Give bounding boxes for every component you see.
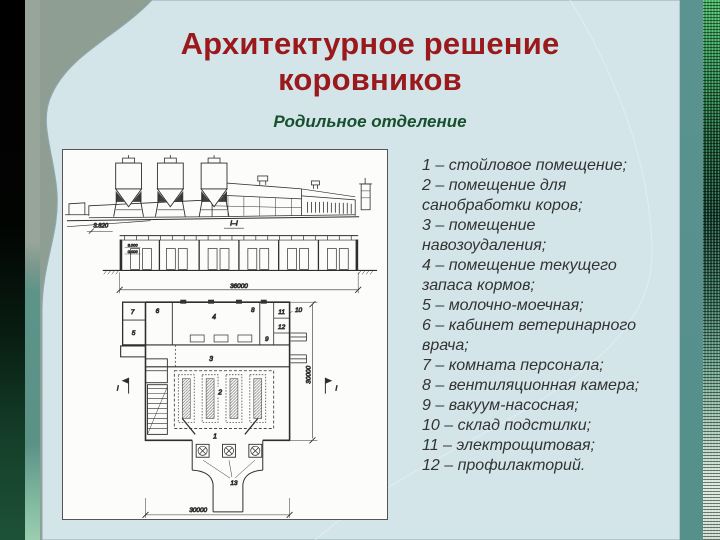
section-level-upper: 3.000 [128, 243, 139, 248]
room-label-6: 6 [156, 308, 160, 315]
section-marker-flag [122, 378, 333, 394]
room-label-12: 12 [278, 324, 286, 331]
legend-item: 4 – помещение текущего запаса кормов; [422, 256, 640, 296]
legend-item: 7 – комната персонала; [422, 356, 640, 376]
room-label-13: 13 [230, 480, 238, 487]
legend-item: 1 – стойловое помещение; [422, 156, 640, 176]
elevation-drawing [65, 155, 372, 227]
legend-item: 3 – помещение навозоудаления; [422, 216, 640, 256]
room-number-labels: 7 6 5 4 8 9 11 12 10 3 2 1 13 [131, 307, 303, 487]
drawing-panel: I–I 3.820 [62, 149, 388, 520]
right-texture-strip [703, 0, 720, 540]
slide-subtitle: Родильное отделение [90, 112, 650, 132]
room-label-10: 10 [295, 307, 303, 314]
cowshed-drawing: I–I 3.820 [63, 150, 387, 519]
room-label-2: 2 [217, 390, 222, 397]
slide-title: Архитектурное решение коровников [90, 26, 650, 98]
plan-height-dim: 30000 [305, 365, 312, 383]
legend-list: 1 – стойловое помещение; 2 – помещение д… [422, 156, 640, 476]
room-label-11: 11 [278, 309, 285, 316]
left-accent-strip [25, 0, 40, 540]
room-label-8: 8 [251, 307, 255, 314]
silo-group [114, 155, 229, 217]
legend-item: 2 – помещение для санобработки коров; [422, 176, 640, 216]
legend-item: 5 – молочно-моечная; [422, 296, 640, 316]
legend-item: 6 – кабинет ветеринарного врача; [422, 316, 640, 356]
elevation-level-label: 3.820 [93, 224, 109, 230]
room-label-3: 3 [209, 356, 213, 363]
legend-item: 10 – склад подстилки; [422, 416, 640, 436]
legend-item: 11 – электрощитовая; [422, 436, 640, 456]
legend-item: 12 – профилакторий. [422, 456, 640, 476]
room-label-7: 7 [131, 309, 135, 316]
section-mark-label: I–I [230, 221, 238, 228]
legend-item: 8 – вентиляционная камера; [422, 376, 640, 396]
room-label-9: 9 [265, 336, 269, 343]
room-label-4: 4 [212, 314, 216, 321]
legend-item: 9 – вакуум-насосная; [422, 396, 640, 416]
room-label-5: 5 [132, 330, 136, 337]
room-label-1: 1 [213, 433, 217, 440]
section-marker-left-label: I [117, 386, 119, 393]
floor-plan-drawing: 30000 30000 I I 7 [117, 300, 338, 518]
slide: Архитектурное решение коровников Родильн… [0, 0, 720, 540]
left-edge-bar [0, 0, 25, 540]
right-accent-strip [680, 0, 703, 540]
section-marker-right-label: I [335, 386, 337, 393]
section-width-dim: 36000 [230, 283, 248, 290]
section-drawing: I–I 3.820 [87, 221, 377, 294]
section-level-lower: 0.000 [128, 249, 139, 254]
plan-width-dim: 30000 [189, 507, 207, 514]
